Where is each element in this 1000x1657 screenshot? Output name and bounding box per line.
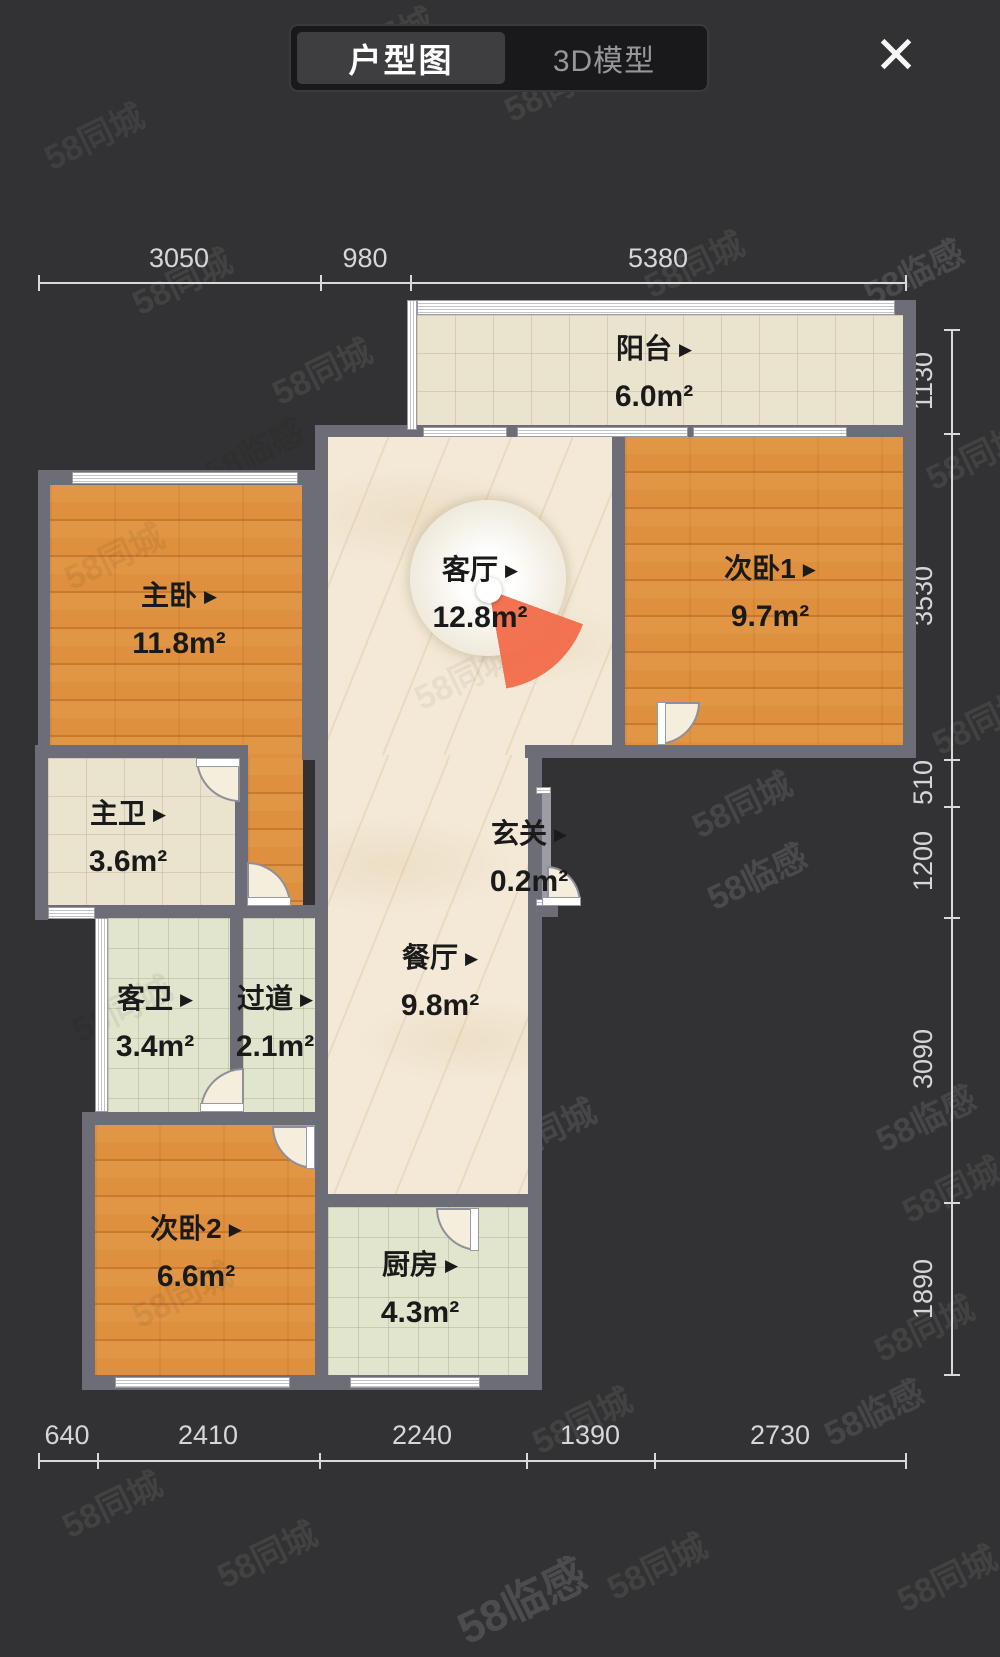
watermark: 58临感 bbox=[698, 829, 815, 919]
dimension-label: 2730 bbox=[720, 1420, 840, 1451]
floorplan-tabbar: 户型图 3D模型 bbox=[289, 24, 709, 92]
dimension-label: 1200 bbox=[908, 781, 944, 941]
wall bbox=[82, 1112, 95, 1390]
room-name: 玄关 bbox=[491, 818, 547, 849]
room-label-bedroom-2[interactable]: 次卧2▶ 6.6m² bbox=[106, 1206, 286, 1300]
dimension-tick bbox=[320, 275, 322, 291]
window bbox=[115, 1377, 290, 1388]
dimension-tick bbox=[97, 1453, 99, 1469]
room-name: 过道 bbox=[237, 983, 293, 1014]
dimension-tick bbox=[905, 275, 907, 291]
dimension-tick bbox=[944, 917, 960, 919]
window bbox=[423, 427, 507, 437]
room-name: 次卧1 bbox=[724, 553, 796, 584]
window bbox=[350, 1377, 480, 1388]
wall bbox=[302, 470, 315, 760]
wall bbox=[82, 1112, 328, 1125]
dimension-label: 1890 bbox=[908, 1209, 944, 1369]
window bbox=[693, 427, 847, 437]
wall bbox=[315, 425, 407, 437]
room-label-hallway[interactable]: 过道▶ 2.1m² bbox=[185, 976, 365, 1070]
room-area: 11.8m² bbox=[89, 620, 269, 667]
watermark: 58同城 bbox=[208, 1507, 325, 1597]
dimension-tick bbox=[944, 329, 960, 331]
dimension-label: 1390 bbox=[530, 1420, 650, 1451]
room-label-entryway[interactable]: 玄关▶ 0.2m² bbox=[439, 811, 619, 905]
door-leaf bbox=[200, 1103, 244, 1112]
door-leaf bbox=[247, 897, 291, 906]
tab-floorplan[interactable]: 户型图 bbox=[297, 32, 505, 84]
room-arrow-icon: ▶ bbox=[679, 340, 692, 359]
wall bbox=[525, 745, 916, 758]
room-arrow-icon: ▶ bbox=[229, 1220, 242, 1239]
room-area: 9.8m² bbox=[350, 982, 530, 1029]
door-leaf bbox=[657, 702, 666, 745]
wall bbox=[38, 470, 50, 758]
room-area: 4.3m² bbox=[330, 1289, 510, 1336]
wall bbox=[35, 745, 248, 758]
room-arrow-icon: ▶ bbox=[300, 990, 313, 1009]
room-arrow-icon: ▶ bbox=[465, 949, 478, 968]
room-label-dining-room[interactable]: 餐厅▶ 9.8m² bbox=[350, 935, 530, 1029]
dimension-label: 2240 bbox=[362, 1420, 482, 1451]
window bbox=[417, 300, 895, 315]
dimension-label: 3090 bbox=[908, 979, 944, 1139]
room-name: 主卧 bbox=[141, 580, 197, 611]
window bbox=[407, 300, 417, 430]
dimension-tick bbox=[319, 1453, 321, 1469]
room-area: 0.2m² bbox=[439, 858, 619, 905]
room-name: 餐厅 bbox=[402, 942, 458, 973]
room-name: 厨房 bbox=[382, 1249, 438, 1280]
room-arrow-icon: ▶ bbox=[204, 587, 217, 606]
wall bbox=[903, 300, 916, 758]
watermark: 58同城 bbox=[888, 1531, 1000, 1621]
dimension-tick bbox=[38, 275, 40, 291]
watermark: 58同城 bbox=[598, 1519, 715, 1609]
dimension-label: 5380 bbox=[598, 243, 718, 274]
room-arrow-icon: ▶ bbox=[554, 825, 567, 844]
room-label-balcony[interactable]: 阳台▶ 6.0m² bbox=[564, 326, 744, 420]
dimension-line-bottom bbox=[38, 1460, 907, 1462]
dimension-tick bbox=[654, 1453, 656, 1469]
window-sill bbox=[536, 787, 551, 794]
close-icon[interactable]: ✕ bbox=[866, 26, 926, 86]
dimension-line-top bbox=[38, 282, 907, 284]
room-name: 主卫 bbox=[90, 798, 146, 829]
room-name: 客厅 bbox=[442, 554, 498, 585]
watermark: 58同城 bbox=[683, 757, 800, 847]
dimension-tick bbox=[944, 759, 960, 761]
sliding-door bbox=[517, 427, 688, 437]
watermark: 58同城 bbox=[53, 1457, 170, 1547]
watermark: 58同城 bbox=[263, 324, 380, 414]
door-leaf bbox=[306, 1126, 315, 1169]
room-label-kitchen[interactable]: 厨房▶ 4.3m² bbox=[330, 1242, 510, 1336]
watermark: 58临感 bbox=[445, 1539, 596, 1657]
room-label-bedroom-1[interactable]: 次卧1▶ 9.7m² bbox=[680, 546, 860, 640]
room-label-living-room[interactable]: 客厅▶ 12.8m² bbox=[390, 547, 570, 641]
dimension-tick bbox=[410, 275, 412, 291]
room-arrow-icon: ▶ bbox=[803, 560, 816, 579]
room-area: 6.6m² bbox=[106, 1253, 286, 1300]
door-leaf bbox=[196, 758, 240, 767]
room-area: 3.6m² bbox=[38, 838, 218, 885]
room-arrow-icon: ▶ bbox=[505, 561, 518, 580]
room-label-master-bedroom[interactable]: 主卧▶ 11.8m² bbox=[89, 573, 269, 667]
dimension-tick bbox=[944, 1202, 960, 1204]
room-area: 9.7m² bbox=[680, 593, 860, 640]
room-name: 阳台 bbox=[616, 333, 672, 364]
room-name: 次卧2 bbox=[150, 1213, 222, 1244]
tab-3d-model[interactable]: 3D模型 bbox=[505, 32, 703, 84]
dimension-tick bbox=[905, 1453, 907, 1469]
room-label-master-bathroom[interactable]: 主卫▶ 3.6m² bbox=[38, 791, 218, 885]
dimension-label: 640 bbox=[7, 1420, 127, 1451]
room-name: 客卫 bbox=[117, 983, 173, 1014]
room-arrow-icon: ▶ bbox=[445, 1256, 458, 1275]
wall bbox=[315, 1112, 328, 1390]
room-arrow-icon: ▶ bbox=[153, 805, 166, 824]
dimension-tick bbox=[526, 1453, 528, 1469]
dimension-tick bbox=[944, 806, 960, 808]
window bbox=[72, 472, 298, 484]
dimension-label: 2410 bbox=[148, 1420, 268, 1451]
wall bbox=[328, 1194, 528, 1207]
room-area: 12.8m² bbox=[390, 594, 570, 641]
dimension-tick bbox=[944, 1374, 960, 1376]
dimension-line-right bbox=[951, 329, 953, 1376]
room-area: 6.0m² bbox=[564, 373, 744, 420]
watermark: 58同城 bbox=[35, 89, 152, 179]
dimension-label: 3050 bbox=[119, 243, 239, 274]
window bbox=[48, 907, 95, 919]
dimension-label: 980 bbox=[305, 243, 425, 274]
room-area: 2.1m² bbox=[185, 1023, 365, 1070]
dimension-tick bbox=[944, 433, 960, 435]
wall bbox=[612, 437, 625, 758]
wall bbox=[315, 425, 328, 918]
dimension-tick bbox=[38, 1453, 40, 1469]
